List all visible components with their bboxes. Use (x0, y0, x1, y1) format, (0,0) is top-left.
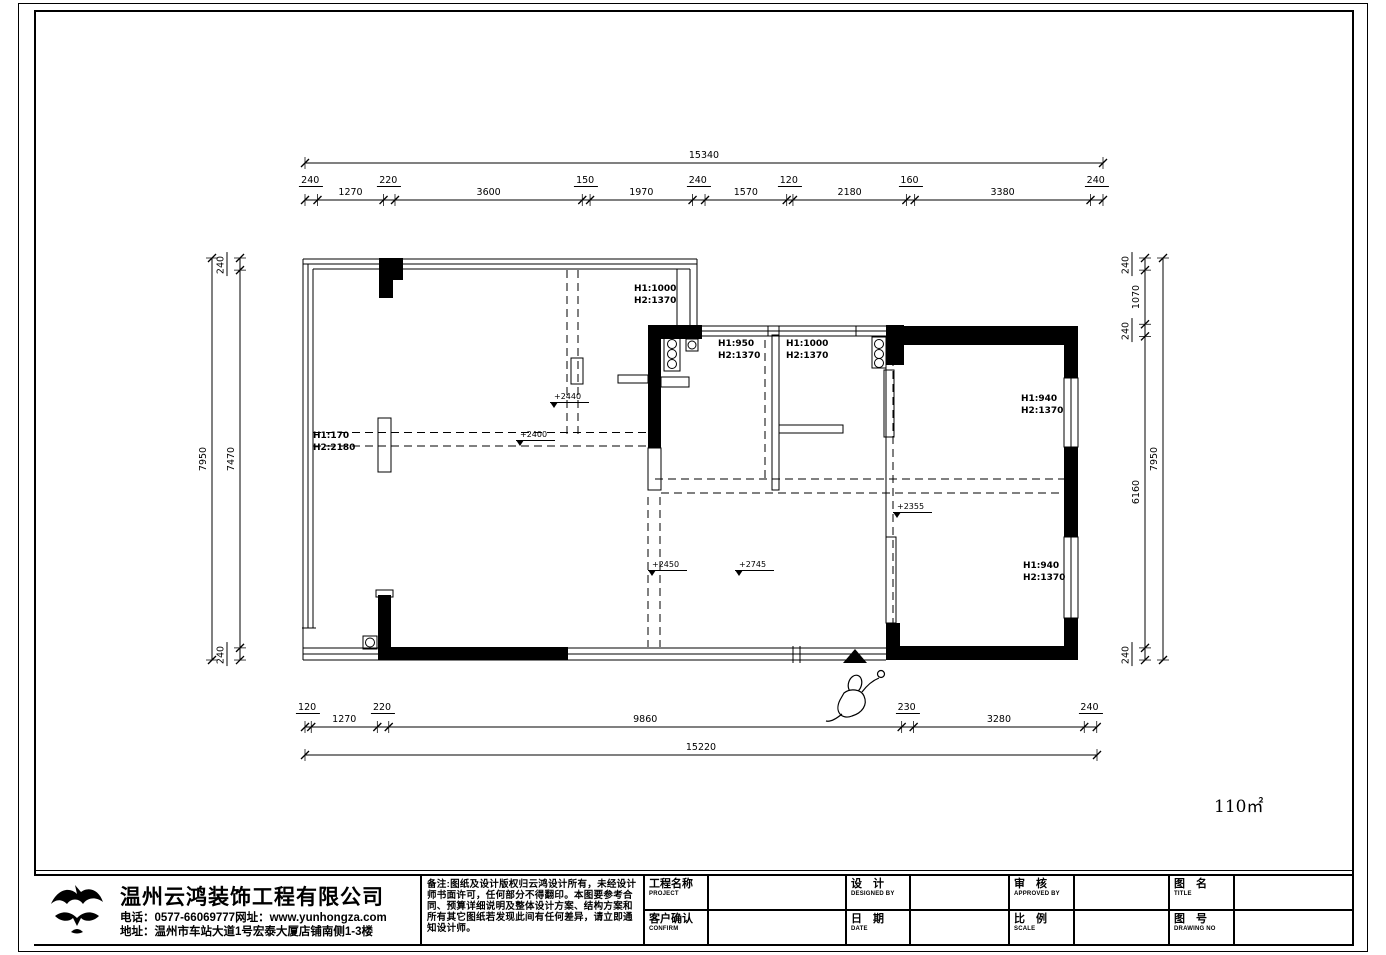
date-value-cell (909, 909, 1008, 944)
scale-label-cell: 比 例 SCALE (1008, 909, 1073, 944)
company-logo (44, 882, 110, 938)
company-phone: 电话：0577-66069777网址：www.yunhongza.com (120, 911, 387, 925)
design-sublabel: DESIGNED BY (851, 891, 906, 898)
confirm-sublabel: CONFIRM (649, 926, 704, 933)
project-value-cell (707, 876, 845, 909)
project-label-cell: 工程名称 PROJECT (643, 876, 707, 909)
notes-cell: 备注:图纸及设计版权归云鸿设计所有，未经设计师书面许可，任何部分不得翻印。本图要… (420, 876, 643, 944)
design-label: 设 计 (851, 878, 906, 891)
approved-sublabel: APPROVED BY (1014, 891, 1070, 898)
structural-walls (378, 258, 1078, 663)
scale-value-cell (1073, 909, 1168, 944)
drawingno-sublabel: DRAWING NO (1174, 926, 1230, 933)
title-label: 图 名 (1174, 878, 1230, 891)
entry-arrow (843, 649, 867, 663)
date-label: 日 期 (851, 913, 906, 926)
title-label-cell: 图 名 TITLE (1168, 876, 1233, 909)
title-block: 温州云鸿装饰工程有限公司 电话：0577-66069777网址：www.yunh… (34, 874, 1352, 944)
drawingno-value-cell (1233, 909, 1352, 944)
company-name: 温州云鸿装饰工程有限公司 (120, 881, 387, 911)
date-sublabel: DATE (851, 926, 906, 933)
company-text: 温州云鸿装饰工程有限公司 电话：0577-66069777网址：www.yunh… (120, 881, 387, 939)
title-value-cell (1233, 876, 1352, 909)
titleblock-top-rule (34, 870, 1352, 871)
project-sublabel: PROJECT (649, 891, 704, 898)
approved-label-cell: 审 核 APPROVED BY (1008, 876, 1073, 909)
confirm-value-cell (707, 909, 845, 944)
company-address: 地址：温州市车站大道1号宏泰大厦店铺南侧1-3楼 (120, 925, 387, 939)
drawingno-label: 图 号 (1174, 913, 1230, 926)
windows-fixtures (363, 335, 1078, 663)
dimension-lines (206, 157, 1169, 761)
drawing-sheet: 110㎡ 15340240127022036001501970240157012… (0, 0, 1386, 955)
company-cell: 温州云鸿装饰工程有限公司 电话：0577-66069777网址：www.yunh… (34, 876, 420, 944)
scale-sublabel: SCALE (1014, 926, 1070, 933)
date-label-cell: 日 期 DATE (845, 909, 909, 944)
approved-label: 审 核 (1014, 878, 1070, 891)
scale-label: 比 例 (1014, 913, 1070, 926)
confirm-label: 客户确认 (649, 913, 704, 926)
confirm-label-cell: 客户确认 CONFIRM (643, 909, 707, 944)
drawingno-label-cell: 图 号 DRAWING NO (1168, 909, 1233, 944)
design-label-cell: 设 计 DESIGNED BY (845, 876, 909, 909)
project-label: 工程名称 (649, 878, 704, 891)
floor-plan-canvas (0, 0, 1386, 955)
approved-value-cell (1073, 876, 1168, 909)
design-value-cell (909, 876, 1008, 909)
title-sublabel: TITLE (1174, 891, 1230, 898)
person-figure (826, 671, 885, 722)
